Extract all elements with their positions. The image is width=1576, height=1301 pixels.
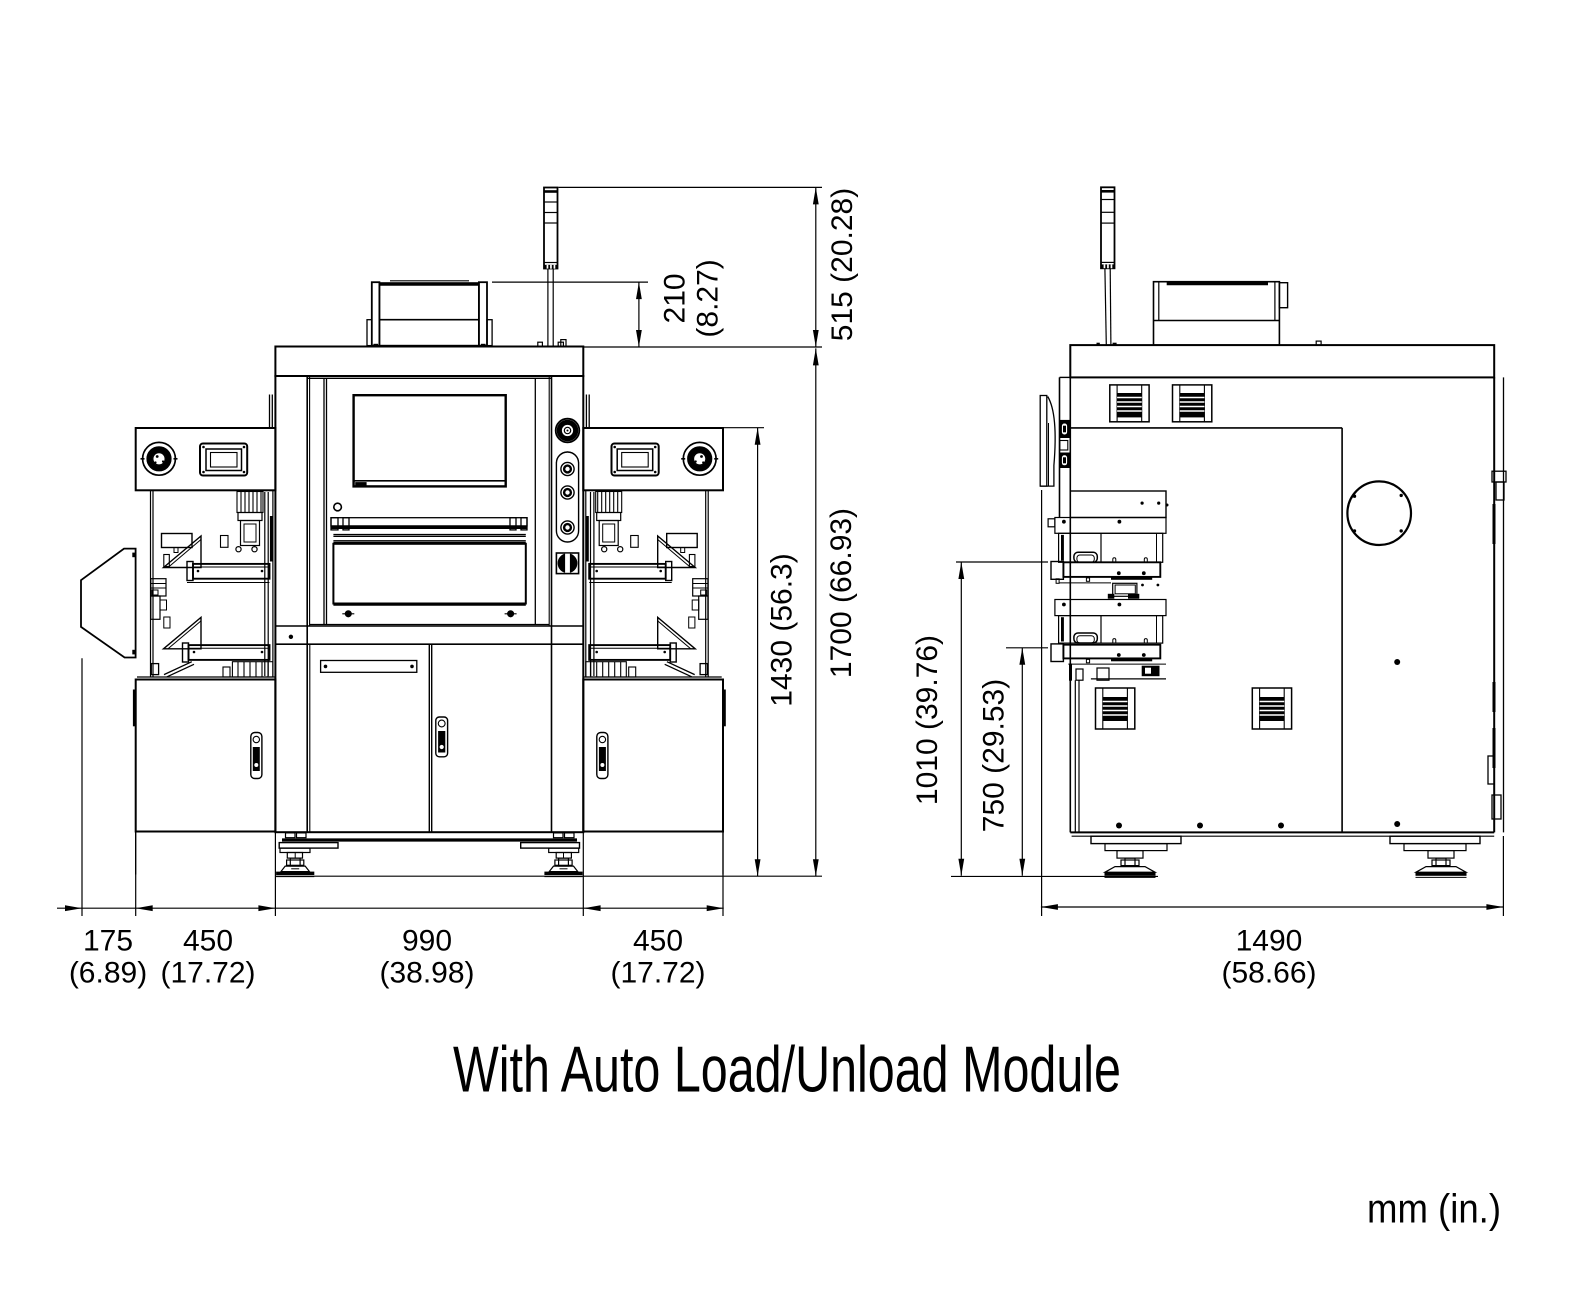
svg-text:175: 175: [83, 925, 133, 958]
svg-text:450: 450: [183, 925, 233, 958]
svg-text:1010 (39.76): 1010 (39.76): [911, 635, 944, 805]
svg-text:(38.98): (38.98): [379, 957, 474, 990]
svg-text:990: 990: [402, 925, 452, 958]
svg-text:1700 (66.93): 1700 (66.93): [825, 508, 858, 678]
svg-text:(6.89): (6.89): [69, 957, 147, 990]
svg-text:1430 (56.3): 1430 (56.3): [766, 553, 799, 706]
svg-text:(8.27): (8.27): [691, 259, 724, 337]
svg-text:750 (29.53): 750 (29.53): [978, 679, 1011, 832]
svg-text:450: 450: [633, 925, 683, 958]
svg-text:210: 210: [659, 273, 692, 323]
svg-text:(17.72): (17.72): [610, 957, 705, 990]
svg-text:mm (in.): mm (in.): [1367, 1186, 1501, 1232]
svg-text:1490: 1490: [1236, 925, 1303, 958]
svg-text:(58.66): (58.66): [1221, 957, 1316, 990]
svg-text:With Auto Load/Unload Module: With Auto Load/Unload Module: [453, 1033, 1121, 1106]
svg-text:515 (20.28): 515 (20.28): [826, 188, 859, 341]
svg-text:(17.72): (17.72): [160, 957, 255, 990]
